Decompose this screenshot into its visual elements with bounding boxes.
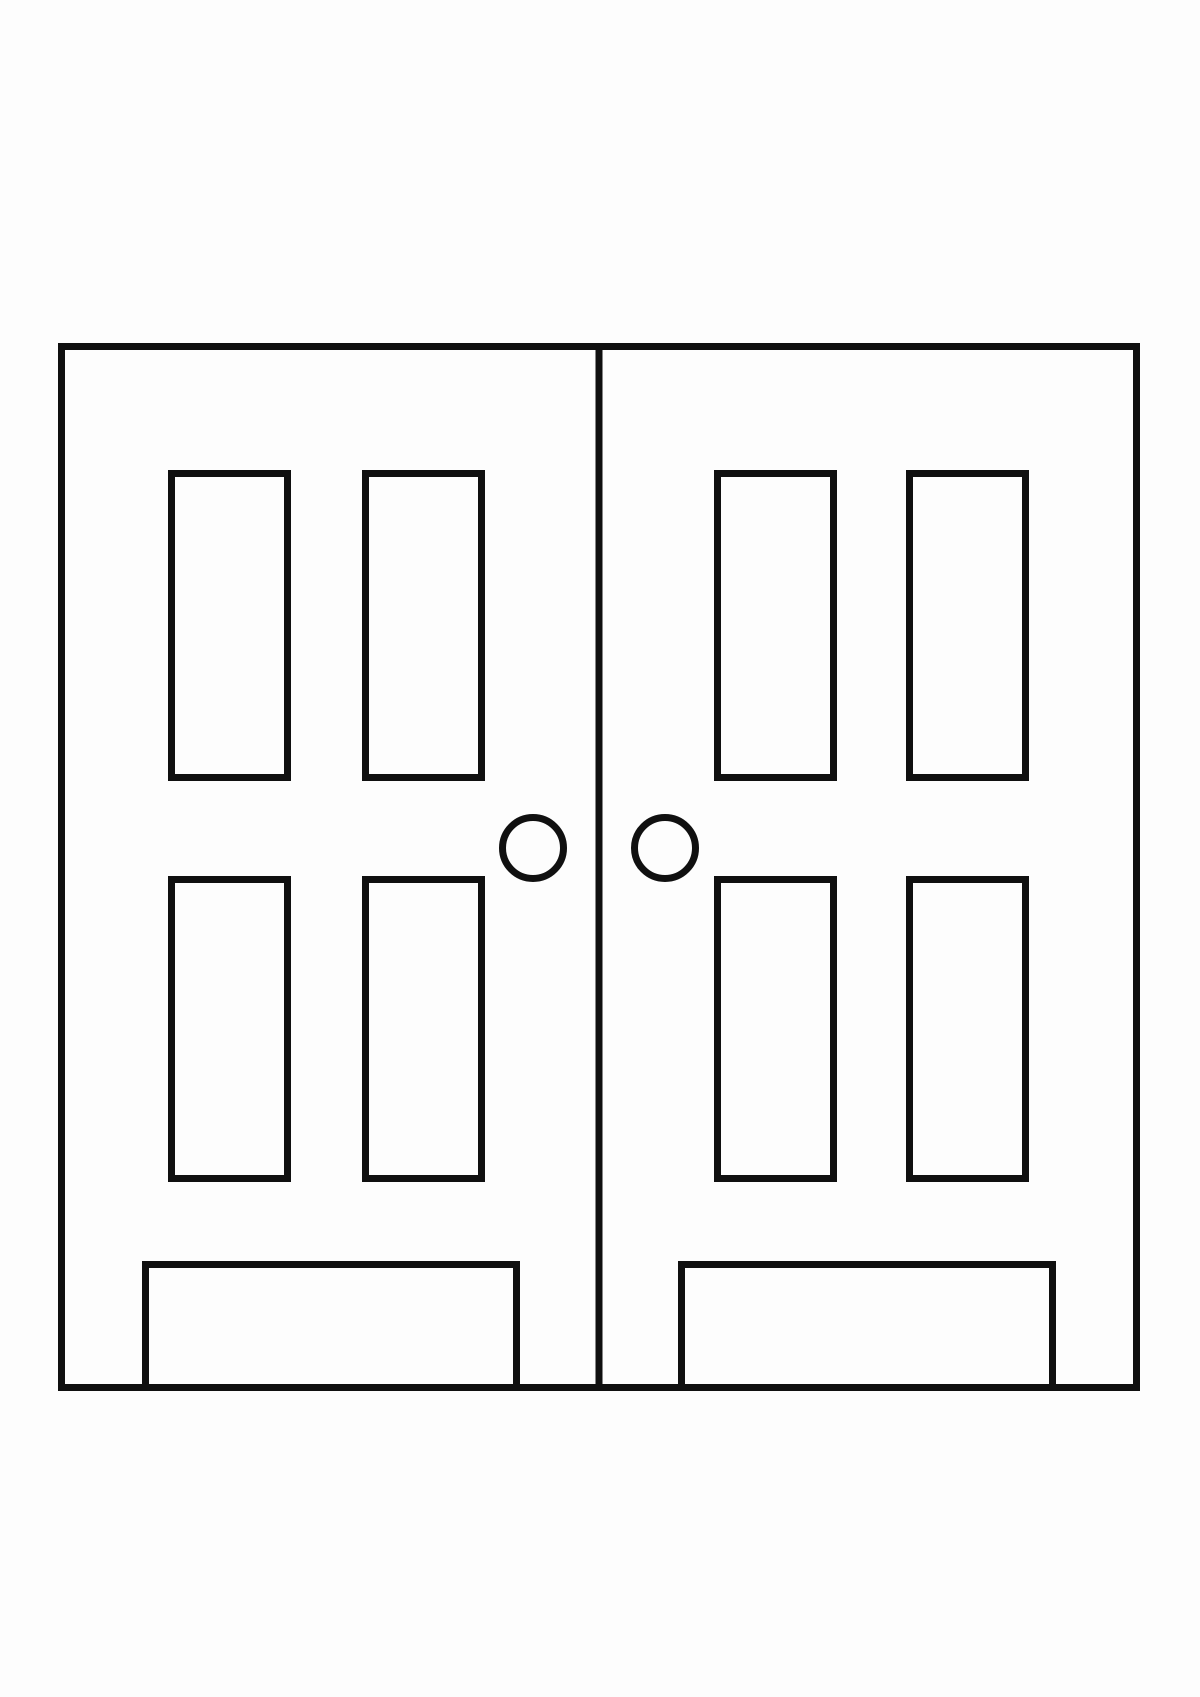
- left-door-panel-top-left: [172, 474, 288, 778]
- left-door-kick-plate: [146, 1265, 517, 1388]
- right-door-panel-bottom-right: [910, 880, 1026, 1179]
- right-door-knob: [635, 818, 696, 879]
- left-door-panel-top-right: [366, 474, 482, 778]
- left-door-knob: [503, 818, 564, 879]
- coloring-page: [0, 0, 1200, 1697]
- left-door-panel-bottom-right: [366, 880, 482, 1179]
- right-door-panel-bottom-left: [718, 880, 834, 1179]
- left-door-panel-bottom-left: [172, 880, 288, 1179]
- right-door-panel-top-right: [910, 474, 1026, 778]
- double-doors-illustration: [0, 0, 1200, 1697]
- right-door-panel-top-left: [718, 474, 834, 778]
- right-door-kick-plate: [682, 1265, 1053, 1388]
